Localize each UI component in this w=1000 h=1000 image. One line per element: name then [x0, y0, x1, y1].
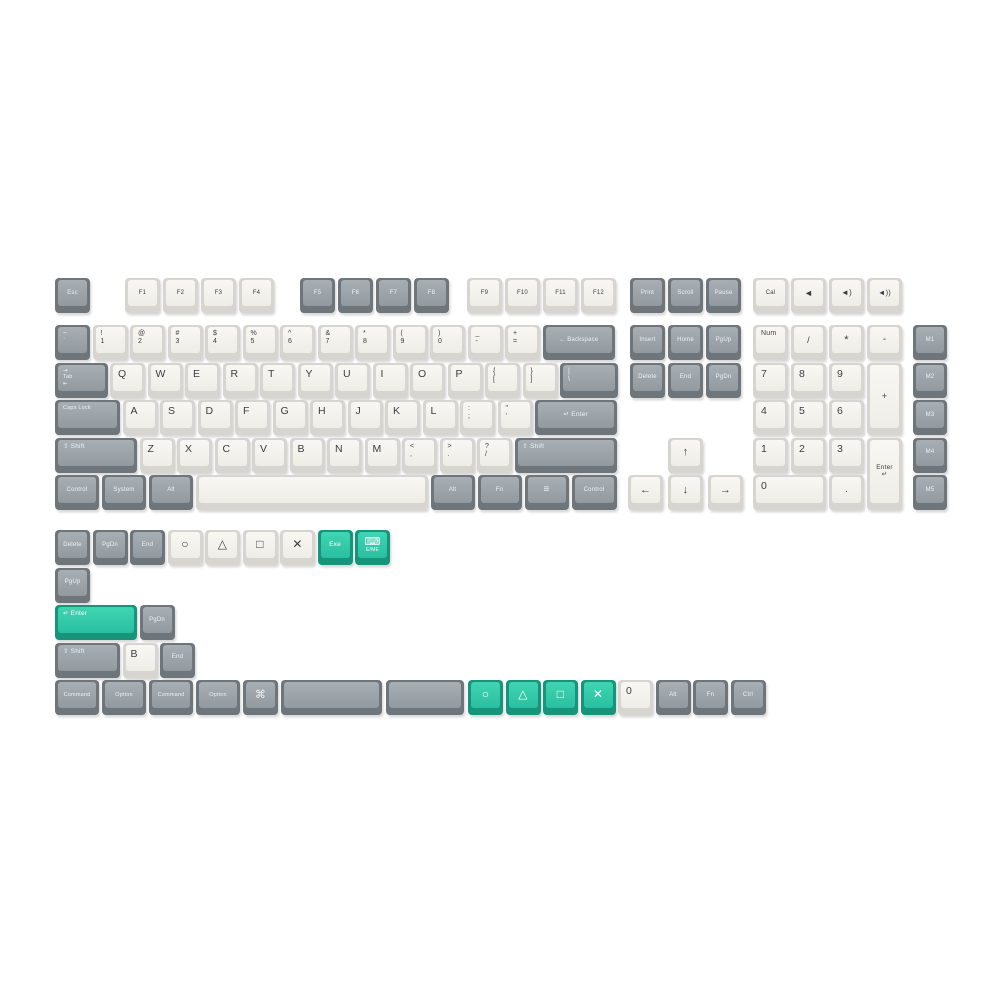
- key-x-pgdn2: PgDn: [140, 605, 175, 640]
- keycap-surface: 0: [756, 477, 823, 503]
- key-8: *8: [355, 325, 390, 360]
- key-legend: Z: [143, 440, 172, 466]
- key-legend: *: [832, 327, 861, 353]
- key-equal: +=: [505, 325, 540, 360]
- key-x-pgdn: PgDn: [93, 530, 128, 565]
- key-x-end2: End: [160, 643, 195, 678]
- keycap-surface: Delete: [633, 365, 662, 391]
- key-np4: 4: [753, 400, 788, 435]
- key-legend: 3: [832, 440, 861, 466]
- key-legend: 0: [756, 477, 823, 503]
- key-legend: S: [163, 402, 192, 428]
- keycap-surface: :;: [463, 402, 492, 428]
- keycap-surface: Delete: [58, 532, 87, 558]
- key-capslock: Caps Lock: [55, 400, 120, 435]
- keycap-surface: ✕: [283, 532, 312, 558]
- keycap-surface: E: [188, 365, 217, 391]
- keycap-surface: ⇧ Shift: [518, 440, 614, 466]
- key-legend: +: [870, 365, 899, 429]
- key-np7: 7: [753, 363, 788, 398]
- key-legend: Option: [105, 682, 143, 708]
- key-arrow-left: ←: [628, 475, 663, 510]
- key-legend: ⇥Tab⇤: [58, 365, 105, 391]
- key-teal-cross: ✕: [581, 680, 616, 715]
- keycap-surface: X: [180, 440, 209, 466]
- key-x-fn: Fn: [693, 680, 728, 715]
- key-legend: [389, 682, 461, 708]
- keycap-surface: Fn: [481, 477, 519, 503]
- key-legend: +=: [508, 327, 537, 353]
- key-home: Home: [668, 325, 703, 360]
- key-legend: Fn: [481, 477, 519, 503]
- key-np6: 6: [829, 400, 864, 435]
- keycap-surface: ⇧ Shift: [58, 440, 134, 466]
- keycap-surface: F4: [242, 280, 271, 306]
- key-enter: ↵ Enter: [535, 400, 617, 435]
- key-f1: F1: [125, 278, 160, 313]
- key-x-zero: 0: [618, 680, 653, 715]
- keycap-surface: F1: [128, 280, 157, 306]
- keycap-surface: (9: [396, 327, 425, 353]
- keycap-surface: T: [263, 365, 292, 391]
- key-lshift: ⇧ Shift: [55, 438, 137, 473]
- key-x-end: End: [130, 530, 165, 565]
- keycap-surface: +=: [508, 327, 537, 353]
- key-lbracket: {[: [485, 363, 520, 398]
- key-legend: F12: [584, 280, 613, 306]
- keycap-surface: Scroll: [671, 280, 700, 306]
- key-teal-triangle: △: [506, 680, 541, 715]
- key-legend: {[: [488, 365, 517, 391]
- key-pgdn: PgDn: [706, 363, 741, 398]
- key-l: L: [423, 400, 458, 435]
- key-arrow-right: →: [708, 475, 743, 510]
- keycap-surface: 5: [794, 402, 823, 428]
- key-x-delete: Delete: [55, 530, 90, 565]
- key-np-minus: -: [867, 325, 902, 360]
- key-lcontrol: Control: [55, 475, 99, 510]
- key-legend: T: [263, 365, 292, 391]
- keycap-surface: ↵ Enter: [58, 607, 134, 633]
- keycap-surface: F10: [508, 280, 537, 306]
- key-blank-wide2: [386, 680, 464, 715]
- keycap-surface: System: [105, 477, 143, 503]
- key-legend: △: [208, 532, 237, 558]
- keycap-surface: Insert: [633, 327, 662, 353]
- key-legend: ← Backspace: [546, 327, 613, 353]
- key-legend: Esc: [58, 280, 87, 306]
- key-legend: F11: [546, 280, 575, 306]
- keycap-surface: F12: [584, 280, 613, 306]
- key-legend: Alt: [659, 682, 688, 708]
- key-legend: (9: [396, 327, 425, 353]
- key-np-div: /: [791, 325, 826, 360]
- key-vol-up: ◄)): [867, 278, 902, 313]
- key-cmd-symbol: ⌘: [243, 680, 278, 715]
- key-1: !1: [93, 325, 128, 360]
- keycap-surface: 6: [832, 402, 861, 428]
- keycap-surface: O: [413, 365, 442, 391]
- key-numlock: Num: [753, 325, 788, 360]
- key-m5: M5: [913, 475, 947, 510]
- keycap-surface: Command: [58, 682, 96, 708]
- keycap-surface: Command: [152, 682, 190, 708]
- key-teal-square: □: [543, 680, 578, 715]
- key-legend: ↑: [671, 440, 700, 466]
- key-legend: □: [546, 682, 575, 708]
- keycap-surface: [199, 477, 425, 503]
- key-legend: F5: [303, 280, 332, 306]
- key-comma: <,: [402, 438, 437, 473]
- keycap-surface: 1: [756, 440, 785, 466]
- key-legend: ⌨E/ME: [358, 532, 387, 558]
- key-legend: B: [126, 645, 155, 671]
- keycap-surface: >.: [443, 440, 472, 466]
- keycap-surface: Print: [633, 280, 662, 306]
- keycap-surface: N: [330, 440, 359, 466]
- keycap-surface: M2: [916, 365, 944, 391]
- keycap-surface: →: [711, 477, 740, 503]
- keycap-surface: K: [388, 402, 417, 428]
- key-legend: Print: [633, 280, 662, 306]
- key-legend: Fn: [696, 682, 725, 708]
- keycap-surface: ^6: [283, 327, 312, 353]
- key-legend: ✕: [283, 532, 312, 558]
- key-np5: 5: [791, 400, 826, 435]
- keycap-surface: Home: [671, 327, 700, 353]
- key-arrow-up: ↑: [668, 438, 703, 473]
- key-f7: F7: [376, 278, 411, 313]
- keycap-surface: Y: [301, 365, 330, 391]
- key-legend: PgDn: [143, 607, 172, 633]
- key-legend: O: [413, 365, 442, 391]
- key-cal: Cal: [753, 278, 788, 313]
- keycap-surface: Fn: [696, 682, 725, 708]
- key-ps-triangle: △: [205, 530, 240, 565]
- key-legend: E: [188, 365, 217, 391]
- key-legend: I: [376, 365, 405, 391]
- keycap-surface: □: [246, 532, 275, 558]
- key-o: O: [410, 363, 445, 398]
- keycap-surface: G: [276, 402, 305, 428]
- key-2: @2: [130, 325, 165, 360]
- key-legend: M: [368, 440, 397, 466]
- keycap-surface: B: [126, 645, 155, 671]
- key-f11: F11: [543, 278, 578, 313]
- key-legend: /: [794, 327, 823, 353]
- key-x-shift: ⇧ Shift: [55, 643, 120, 678]
- keycap-surface: F5: [303, 280, 332, 306]
- key-x: X: [177, 438, 212, 473]
- key-legend: :;: [463, 402, 492, 428]
- keycap-surface: &7: [321, 327, 350, 353]
- key-ps-circle: ○: [168, 530, 203, 565]
- key-delete: Delete: [630, 363, 665, 398]
- key-m1: M1: [913, 325, 947, 360]
- key-quote: "': [498, 400, 533, 435]
- key-legend: M2: [916, 365, 944, 391]
- keycap-surface: <,: [405, 440, 434, 466]
- key-legend: PgDn: [709, 365, 738, 391]
- keycap-surface: Pause: [709, 280, 738, 306]
- key-end: End: [668, 363, 703, 398]
- keycap-surface: PgDn: [96, 532, 125, 558]
- key-ps-cross: ✕: [280, 530, 315, 565]
- key-legend: ⌘: [246, 682, 275, 708]
- key-legend: 5: [794, 402, 823, 428]
- key-command2: Command: [149, 680, 193, 715]
- key-legend: $4: [208, 327, 237, 353]
- key-legend: M5: [916, 477, 944, 503]
- keycap-surface: PgUp: [709, 327, 738, 353]
- key-np3: 3: [829, 438, 864, 473]
- keycap-surface: S: [163, 402, 192, 428]
- keycap-surface: Control: [58, 477, 96, 503]
- keycap-surface: Enter↵: [870, 440, 899, 504]
- keycap-surface: End: [671, 365, 700, 391]
- keycap-surface: M1: [916, 327, 944, 353]
- keycap-surface: _-: [471, 327, 500, 353]
- keycap-surface: *8: [358, 327, 387, 353]
- keycap-surface: -: [870, 327, 899, 353]
- key-legend: V: [255, 440, 284, 466]
- keycap-surface: Control: [575, 477, 614, 503]
- keycap-surface: ⌨E/ME: [358, 532, 387, 558]
- key-legend: ○: [171, 532, 200, 558]
- keycap-surface: ~`: [58, 327, 87, 353]
- key-ralt: Alt: [431, 475, 475, 510]
- keycap-surface: ↵ Enter: [538, 402, 614, 428]
- key-legend: Y: [301, 365, 330, 391]
- keycap-surface: 0: [621, 682, 650, 708]
- keycap-surface: 4: [756, 402, 785, 428]
- keycap-surface: F11: [546, 280, 575, 306]
- key-legend: ~`: [58, 327, 87, 353]
- keycap-surface: C: [218, 440, 247, 466]
- key-legend: System: [105, 477, 143, 503]
- key-option2: Option: [196, 680, 240, 715]
- keycap-surface: PgDn: [143, 607, 172, 633]
- keycap-surface: ⌘: [246, 682, 275, 708]
- key-legend: ◄)): [870, 280, 899, 306]
- key-legend: ↵ Enter: [538, 402, 614, 428]
- key-legend: -: [870, 327, 899, 353]
- key-f12: F12: [581, 278, 616, 313]
- key-legend: ⇧ Shift: [518, 440, 614, 466]
- key-legend: D: [201, 402, 230, 428]
- keycap-surface: Num: [756, 327, 785, 353]
- key-rshift: ⇧ Shift: [515, 438, 617, 473]
- keycap-surface: [389, 682, 461, 708]
- key-legend: G: [276, 402, 305, 428]
- keycap-surface: $4: [208, 327, 237, 353]
- key-pause: Pause: [706, 278, 741, 313]
- key-rbracket: }]: [523, 363, 558, 398]
- key-f3: F3: [201, 278, 236, 313]
- key-minus: _-: [468, 325, 503, 360]
- key-legend: F4: [242, 280, 271, 306]
- key-legend: )0: [433, 327, 462, 353]
- key-f8: F8: [414, 278, 449, 313]
- key-esc: Esc: [55, 278, 90, 313]
- keycap-surface: End: [133, 532, 162, 558]
- key-slash: ?/: [477, 438, 512, 473]
- keycap-surface: *: [832, 327, 861, 353]
- keycap-surface: V: [255, 440, 284, 466]
- key-legend: F10: [508, 280, 537, 306]
- key-legend: *8: [358, 327, 387, 353]
- keycap-surface: /: [794, 327, 823, 353]
- keycap-surface: End: [163, 645, 192, 671]
- key-y: Y: [298, 363, 333, 398]
- keycap-surface: R: [226, 365, 255, 391]
- key-legend: ◄): [832, 280, 861, 306]
- key-np-mul: *: [829, 325, 864, 360]
- key-legend: 8: [794, 365, 823, 391]
- key-legend: F7: [379, 280, 408, 306]
- key-legend: End: [133, 532, 162, 558]
- keycap-surface: %5: [246, 327, 275, 353]
- key-np-plus: +: [867, 363, 902, 436]
- key-vol-mute: ◄: [791, 278, 826, 313]
- key-blank-wide1: [281, 680, 382, 715]
- keycap-surface: 9: [832, 365, 861, 391]
- key-legend: L: [426, 402, 455, 428]
- key-e: E: [185, 363, 220, 398]
- keycap-surface: △: [208, 532, 237, 558]
- keycap-surface: +: [870, 365, 899, 429]
- keycap-board: EscF1F2F3F4F5F6F7F8F9F10F11F12PrintScrol…: [0, 0, 1000, 1000]
- key-legend: □: [246, 532, 275, 558]
- key-legend: N: [330, 440, 359, 466]
- key-legend: <,: [405, 440, 434, 466]
- keycap-surface: △: [509, 682, 538, 708]
- keycap-surface: ≡: [528, 477, 566, 503]
- key-d: D: [198, 400, 233, 435]
- key-legend: ↵ Enter: [58, 607, 134, 633]
- key-f2: F2: [163, 278, 198, 313]
- keycap-surface: Cal: [756, 280, 785, 306]
- key-t: T: [260, 363, 295, 398]
- keycap-surface: ←: [631, 477, 660, 503]
- key-legend: ↓: [671, 477, 700, 503]
- keycap-surface: Ctrl: [734, 682, 763, 708]
- keycap-surface: U: [338, 365, 367, 391]
- keycap-surface: L: [426, 402, 455, 428]
- key-legend: K: [388, 402, 417, 428]
- keycap-surface: ◄: [794, 280, 823, 306]
- keycap-surface: J: [351, 402, 380, 428]
- key-print: Print: [630, 278, 665, 313]
- key-legend: U: [338, 365, 367, 391]
- keycap-surface: .: [832, 477, 861, 503]
- key-legend: Num: [756, 327, 785, 353]
- key-legend: End: [163, 645, 192, 671]
- key-legend: >.: [443, 440, 472, 466]
- key-np1: 1: [753, 438, 788, 473]
- keycap-surface: ⇥Tab⇤: [58, 365, 105, 391]
- key-np-enter: Enter↵: [867, 438, 902, 511]
- key-legend: #3: [171, 327, 200, 353]
- key-legend: ←: [631, 477, 660, 503]
- key-legend: M4: [916, 440, 944, 466]
- key-menu: ≡: [525, 475, 569, 510]
- keycap-surface: M: [368, 440, 397, 466]
- key-legend: PgDn: [96, 532, 125, 558]
- key-n: N: [327, 438, 362, 473]
- key-legend: _-: [471, 327, 500, 353]
- key-legend: }]: [526, 365, 555, 391]
- key-s: S: [160, 400, 195, 435]
- key-legend: ○: [471, 682, 500, 708]
- keycap-surface: F6: [341, 280, 370, 306]
- keycap-surface: 3: [832, 440, 861, 466]
- key-legend: 4: [756, 402, 785, 428]
- key-legend: !1: [96, 327, 125, 353]
- keycap-surface: A: [126, 402, 155, 428]
- key-rcontrol: Control: [572, 475, 617, 510]
- key-tab: ⇥Tab⇤: [55, 363, 108, 398]
- keycap-surface: M5: [916, 477, 944, 503]
- key-g: G: [273, 400, 308, 435]
- key-legend: PgUp: [58, 570, 87, 596]
- key-9: (9: [393, 325, 428, 360]
- keycap-surface: F9: [470, 280, 499, 306]
- keycap-surface: PgUp: [58, 570, 87, 596]
- key-p: P: [448, 363, 483, 398]
- key-command1: Command: [55, 680, 99, 715]
- keycap-surface: I: [376, 365, 405, 391]
- key-arrow-down: ↓: [668, 475, 703, 510]
- key-legend: Q: [113, 365, 142, 391]
- key-legend: P: [451, 365, 480, 391]
- key-m2: M2: [913, 363, 947, 398]
- key-legend: A: [126, 402, 155, 428]
- keycap-surface: 8: [794, 365, 823, 391]
- keycap-surface: F2: [166, 280, 195, 306]
- key-legend: [284, 682, 379, 708]
- keycap-surface: F8: [417, 280, 446, 306]
- keycap-surface: ○: [471, 682, 500, 708]
- keycap-surface: M3: [916, 402, 944, 428]
- key-np0: 0: [753, 475, 826, 510]
- key-space: [196, 475, 428, 510]
- key-legend: C: [218, 440, 247, 466]
- key-system: System: [102, 475, 146, 510]
- keycap-surface: ⇧ Shift: [58, 645, 117, 671]
- key-period: >.: [440, 438, 475, 473]
- key-legend: F1: [128, 280, 157, 306]
- keycap-surface: Exe: [321, 532, 350, 558]
- key-legend: W: [151, 365, 180, 391]
- key-legend: &7: [321, 327, 350, 353]
- keycap-surface: ○: [171, 532, 200, 558]
- key-legend: Delete: [633, 365, 662, 391]
- key-legend: ?/: [480, 440, 509, 466]
- keycap-surface: M4: [916, 440, 944, 466]
- key-semicolon: :;: [460, 400, 495, 435]
- key-legend: Control: [575, 477, 614, 503]
- key-pgup: PgUp: [706, 325, 741, 360]
- keycap-surface: |\: [563, 365, 615, 391]
- key-lalt: Alt: [149, 475, 193, 510]
- key-legend: Home: [671, 327, 700, 353]
- key-fn: Fn: [478, 475, 522, 510]
- key-legend: |\: [563, 365, 615, 391]
- key-legend: M1: [916, 327, 944, 353]
- keycap-surface: ?/: [480, 440, 509, 466]
- key-r: R: [223, 363, 258, 398]
